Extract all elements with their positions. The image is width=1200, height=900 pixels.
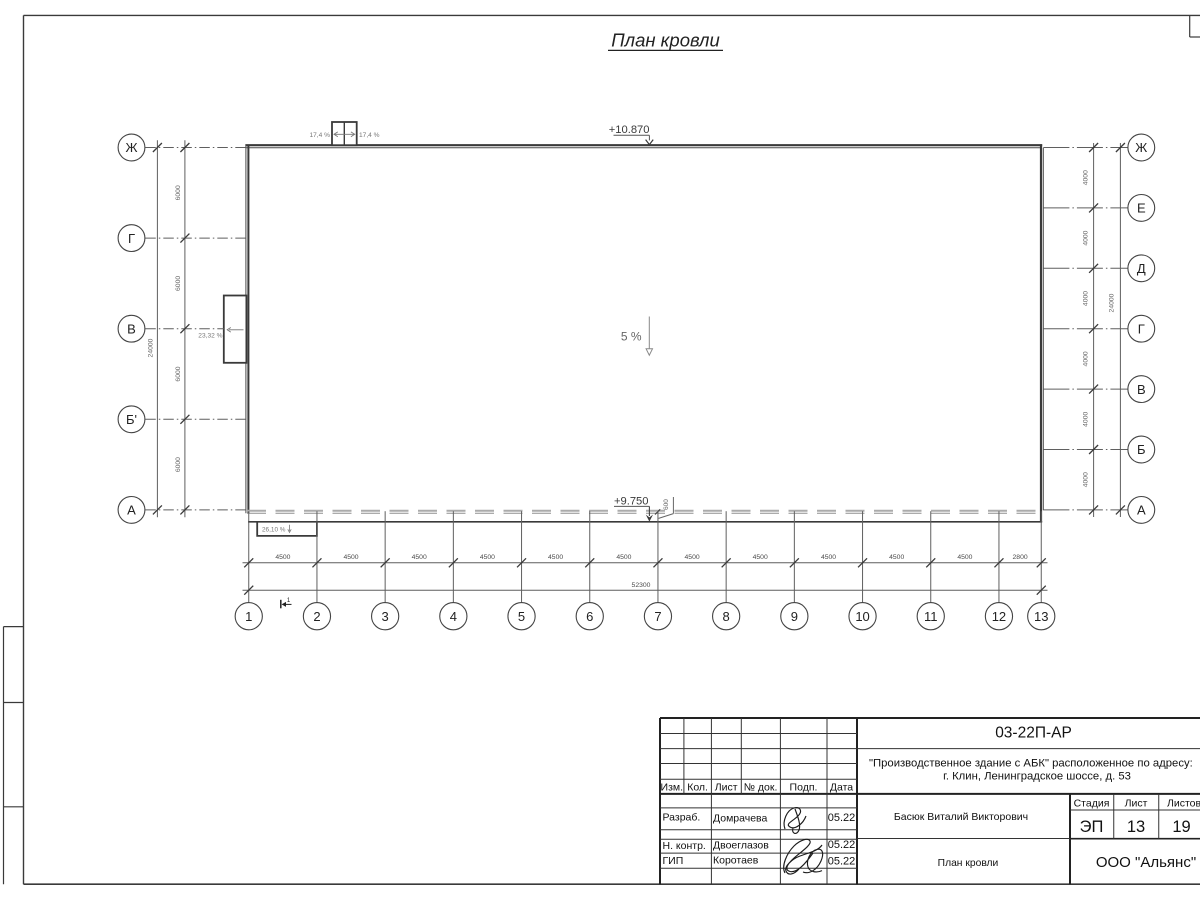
svg-text:+10.870: +10.870: [609, 124, 650, 136]
svg-text:Изм.: Изм.: [661, 782, 684, 794]
svg-text:4500: 4500: [753, 554, 768, 561]
svg-text:Ж: Ж: [1135, 140, 1147, 155]
svg-text:В: В: [127, 321, 136, 336]
svg-text:4500: 4500: [616, 554, 631, 561]
svg-text:13: 13: [1034, 609, 1048, 624]
svg-text:План кровли: План кровли: [611, 30, 720, 51]
svg-text:Г: Г: [1138, 321, 1145, 336]
svg-text:Лист: Лист: [715, 782, 738, 794]
svg-text:Кол.: Кол.: [687, 782, 708, 794]
svg-text:11: 11: [924, 609, 938, 624]
svg-text:Е: Е: [1137, 201, 1146, 216]
svg-text:4000: 4000: [1083, 412, 1090, 427]
svg-text:52300: 52300: [632, 582, 651, 589]
svg-text:Разраб.: Разраб.: [663, 812, 701, 824]
svg-text:А: А: [1137, 503, 1146, 518]
svg-text:1: 1: [245, 609, 252, 624]
svg-text:8: 8: [723, 609, 730, 624]
svg-text:5: 5: [518, 609, 525, 624]
svg-text:4500: 4500: [685, 554, 700, 561]
svg-text:13: 13: [1127, 818, 1145, 836]
svg-text:Листов: Листов: [1167, 798, 1200, 810]
svg-text:Стадия: Стадия: [1074, 798, 1110, 810]
svg-text:23,32 %: 23,32 %: [198, 333, 222, 340]
svg-text:10: 10: [855, 609, 869, 624]
svg-text:600: 600: [663, 499, 670, 510]
svg-text:17,4 %: 17,4 %: [359, 132, 380, 139]
svg-text:Подп.: Подп.: [790, 782, 818, 794]
svg-text:17,4 %: 17,4 %: [309, 132, 330, 139]
svg-text:4000: 4000: [1083, 230, 1090, 245]
svg-text:6000: 6000: [175, 276, 182, 291]
svg-text:4500: 4500: [889, 554, 904, 561]
svg-text:Двоеглазов: Двоеглазов: [713, 840, 769, 852]
svg-text:5 %: 5 %: [621, 329, 642, 343]
svg-text:24000: 24000: [1108, 293, 1115, 312]
svg-text:4500: 4500: [343, 554, 358, 561]
svg-text:05.22: 05.22: [828, 856, 856, 868]
svg-text:4500: 4500: [957, 554, 972, 561]
svg-text:4000: 4000: [1083, 291, 1090, 306]
svg-text:Басюк Виталий Викторович: Басюк Виталий Викторович: [894, 811, 1028, 823]
svg-text:Коротаев: Коротаев: [713, 855, 759, 867]
svg-text:9: 9: [791, 609, 798, 624]
svg-text:4500: 4500: [412, 554, 427, 561]
svg-text:Дата: Дата: [830, 782, 853, 794]
svg-text:Б': Б': [126, 412, 137, 427]
svg-text:7: 7: [654, 609, 661, 624]
svg-text:4500: 4500: [548, 554, 563, 561]
svg-text:Домрачева: Домрачева: [713, 812, 768, 824]
svg-text:6000: 6000: [175, 185, 182, 200]
svg-text:4000: 4000: [1083, 472, 1090, 487]
svg-text:ГИП: ГИП: [663, 855, 684, 867]
svg-text:4000: 4000: [1083, 170, 1090, 185]
svg-text:В: В: [1137, 382, 1146, 397]
svg-text:4: 4: [450, 609, 457, 624]
svg-text:ЭП: ЭП: [1080, 818, 1104, 836]
svg-text:12: 12: [992, 609, 1006, 624]
svg-text:4500: 4500: [275, 554, 290, 561]
svg-text:4500: 4500: [821, 554, 836, 561]
svg-text:Ж: Ж: [125, 140, 137, 155]
svg-text:03-22П-АР: 03-22П-АР: [995, 725, 1072, 742]
svg-text:Лист: Лист: [1125, 798, 1148, 810]
svg-text:6: 6: [586, 609, 593, 624]
svg-text:3: 3: [382, 609, 389, 624]
svg-text:ООО "Альянс": ООО "Альянс": [1096, 854, 1196, 871]
svg-text:24000: 24000: [148, 338, 155, 357]
svg-text:Г: Г: [128, 231, 135, 246]
svg-text:Н. контр.: Н. контр.: [663, 840, 706, 852]
svg-text:"Производственное здание с АБК: "Производственное здание с АБК" располож…: [869, 757, 1193, 769]
svg-text:4000: 4000: [1083, 351, 1090, 366]
svg-text:26,10 %: 26,10 %: [262, 527, 286, 534]
svg-text:План кровли: План кровли: [938, 858, 999, 869]
svg-text:2: 2: [313, 609, 320, 624]
svg-text:А: А: [127, 503, 136, 518]
svg-text:№ док.: № док.: [744, 782, 778, 794]
svg-text:г. Клин, Ленинградское шоссе,: г. Клин, Ленинградское шоссе, д. 53: [943, 770, 1131, 782]
svg-text:05.22: 05.22: [828, 839, 856, 851]
svg-text:4500: 4500: [480, 554, 495, 561]
svg-text:05.22: 05.22: [828, 812, 856, 824]
svg-text:6000: 6000: [175, 366, 182, 381]
svg-text:Б: Б: [1137, 442, 1146, 457]
svg-text:2800: 2800: [1013, 554, 1028, 561]
svg-text:Д: Д: [1137, 261, 1146, 276]
svg-text:19: 19: [1172, 818, 1190, 836]
svg-text:+9.750: +9.750: [614, 495, 649, 507]
svg-text:6000: 6000: [175, 457, 182, 472]
